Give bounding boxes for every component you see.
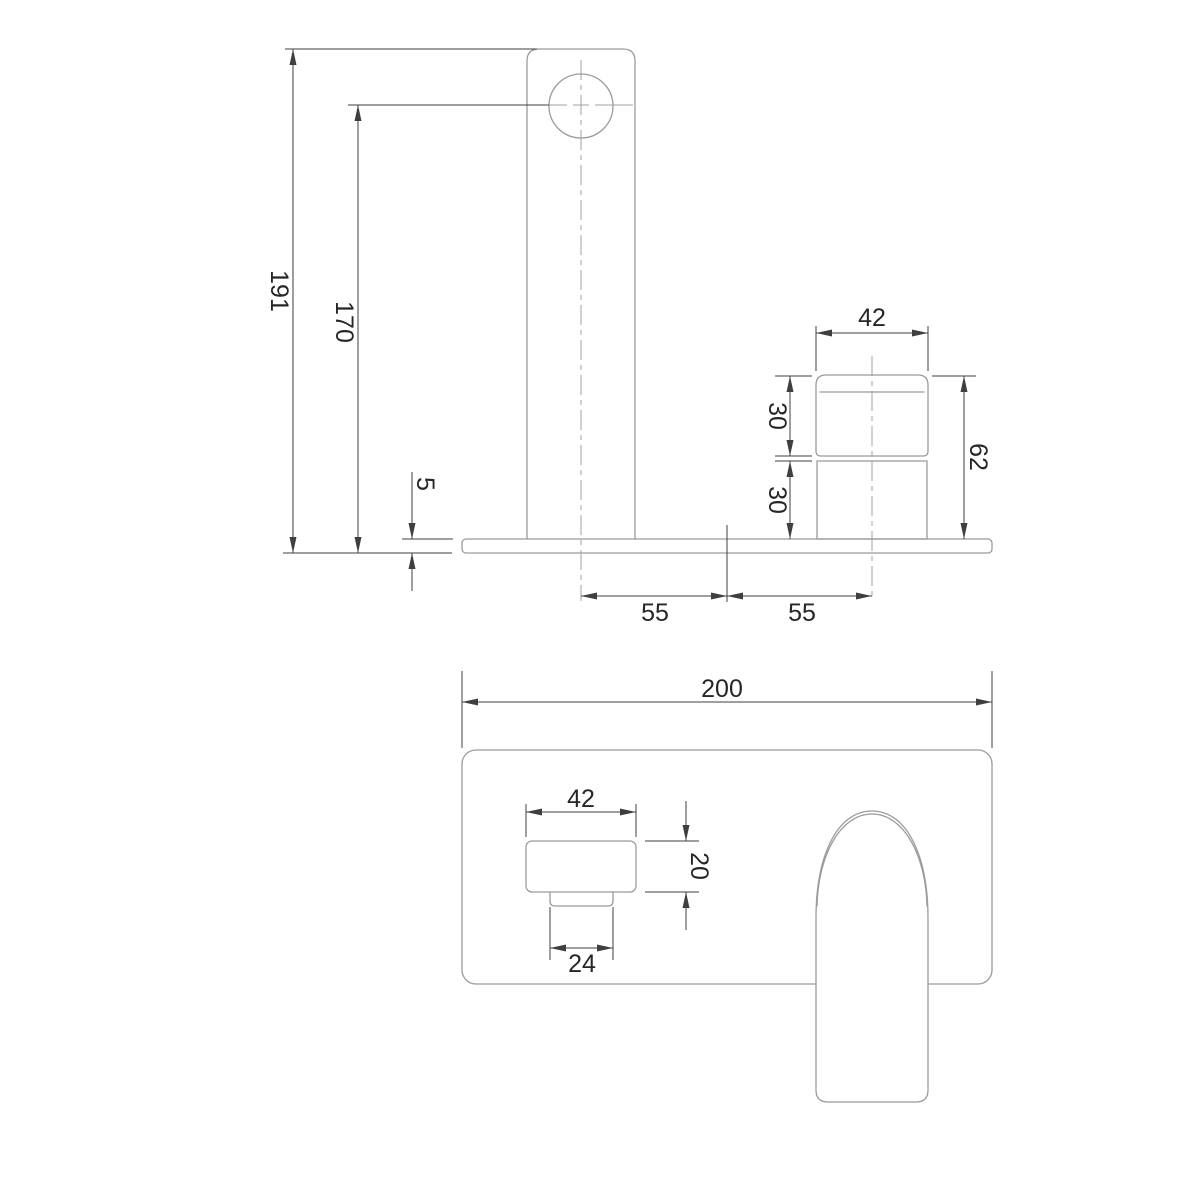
label-plate-thickness: 5	[411, 477, 439, 491]
front-view-geometry	[462, 49, 992, 553]
arrow-42-right	[912, 330, 928, 337]
arrow-20-down	[683, 825, 690, 841]
arrow-170-bottom	[355, 537, 362, 553]
arrow-24-right	[597, 945, 613, 952]
arrow-20-up	[683, 892, 690, 908]
arrow-55-left-end	[581, 593, 597, 600]
arrow-170-top	[355, 105, 362, 121]
plan-spout-body	[526, 841, 636, 892]
arrow-24-left	[550, 945, 566, 952]
label-spout-body-width: 42	[567, 785, 595, 813]
label-handle-width: 42	[858, 304, 886, 332]
label-center-to-handle: 55	[788, 599, 816, 627]
arrow-42-left	[816, 330, 832, 337]
arrow-30b-top	[787, 461, 794, 477]
arrow-55-center-right-tip	[711, 593, 727, 600]
arrow-30a-top	[787, 376, 794, 392]
label-handle-body-height: 30	[763, 486, 791, 514]
label-spout-tip-width: 24	[568, 950, 596, 978]
arrow-62-top	[961, 376, 968, 392]
label-handle-total-height: 62	[964, 443, 992, 471]
label-spout-to-center: 55	[641, 599, 669, 627]
technical-drawing-page: 191 170 5 42 30 30 62 55 55 200 42 20 24	[0, 0, 1200, 1200]
arrow-191-bottom	[290, 537, 297, 553]
arrow-191-top	[290, 49, 297, 65]
dimension-drawing-canvas: 191 170 5 42 30 30 62 55 55 200 42 20 24	[0, 0, 1200, 1200]
arrow-30b-bottom	[787, 523, 794, 539]
label-outlet-height: 170	[330, 301, 358, 343]
arrow-5-down	[409, 523, 416, 539]
arrow-200-left	[462, 699, 478, 706]
arrow-42b-left	[526, 809, 542, 816]
plan-view-geometry	[462, 750, 992, 1102]
arrow-62-bottom	[961, 523, 968, 539]
arrow-30a-bottom	[787, 440, 794, 456]
arrow-5-up	[409, 553, 416, 569]
label-plate-length: 200	[701, 675, 743, 703]
plan-spout-tip	[550, 892, 613, 906]
arrow-55-right-end	[856, 593, 872, 600]
label-spout-body-depth: 20	[685, 852, 713, 880]
plan-lever-handle	[816, 811, 928, 1102]
arrow-55-center-left-tip	[727, 593, 743, 600]
label-overall-height: 191	[265, 270, 293, 312]
label-handle-cap-height: 30	[763, 402, 791, 430]
front-view-centerlines	[549, 60, 872, 601]
arrow-42b-right	[620, 809, 636, 816]
arrow-200-right	[976, 699, 992, 706]
